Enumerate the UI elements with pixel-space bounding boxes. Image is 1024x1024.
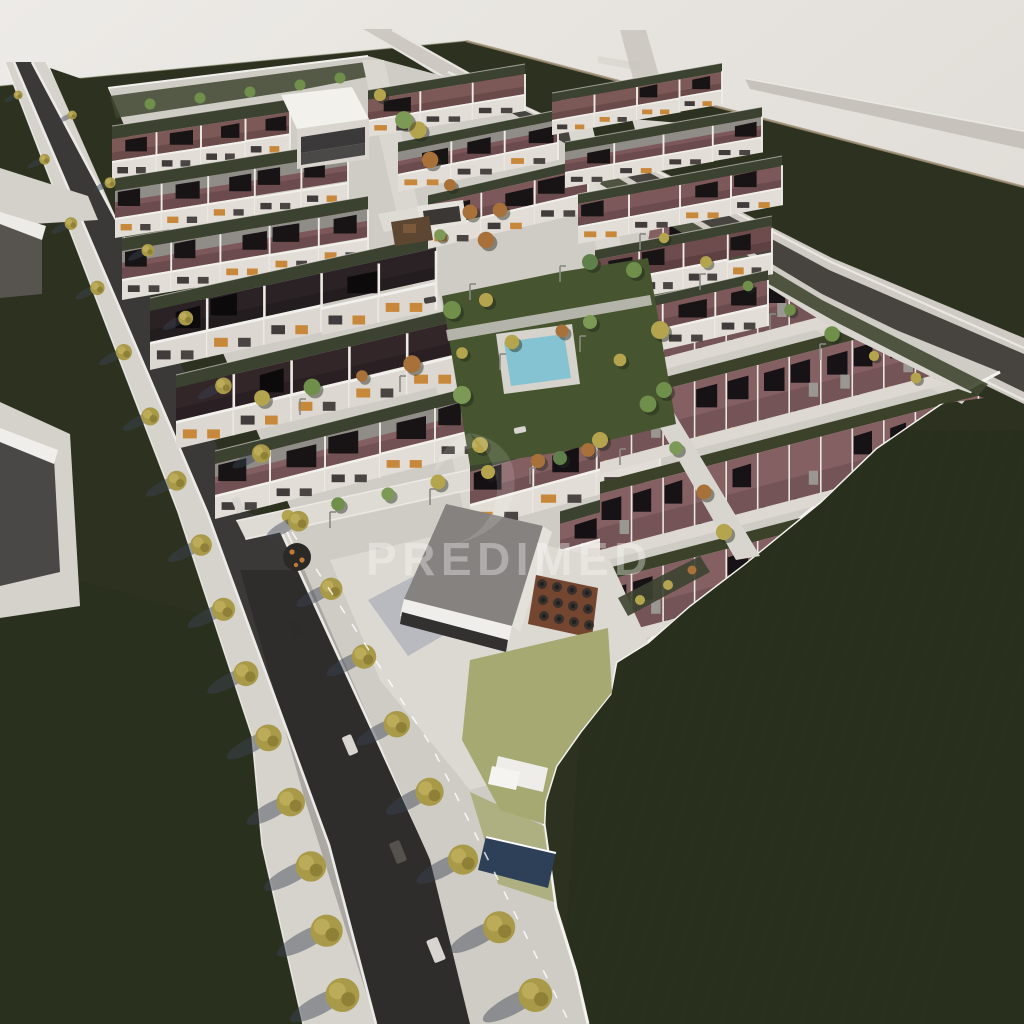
svg-text:PREDIMED: PREDIMED xyxy=(366,533,653,585)
